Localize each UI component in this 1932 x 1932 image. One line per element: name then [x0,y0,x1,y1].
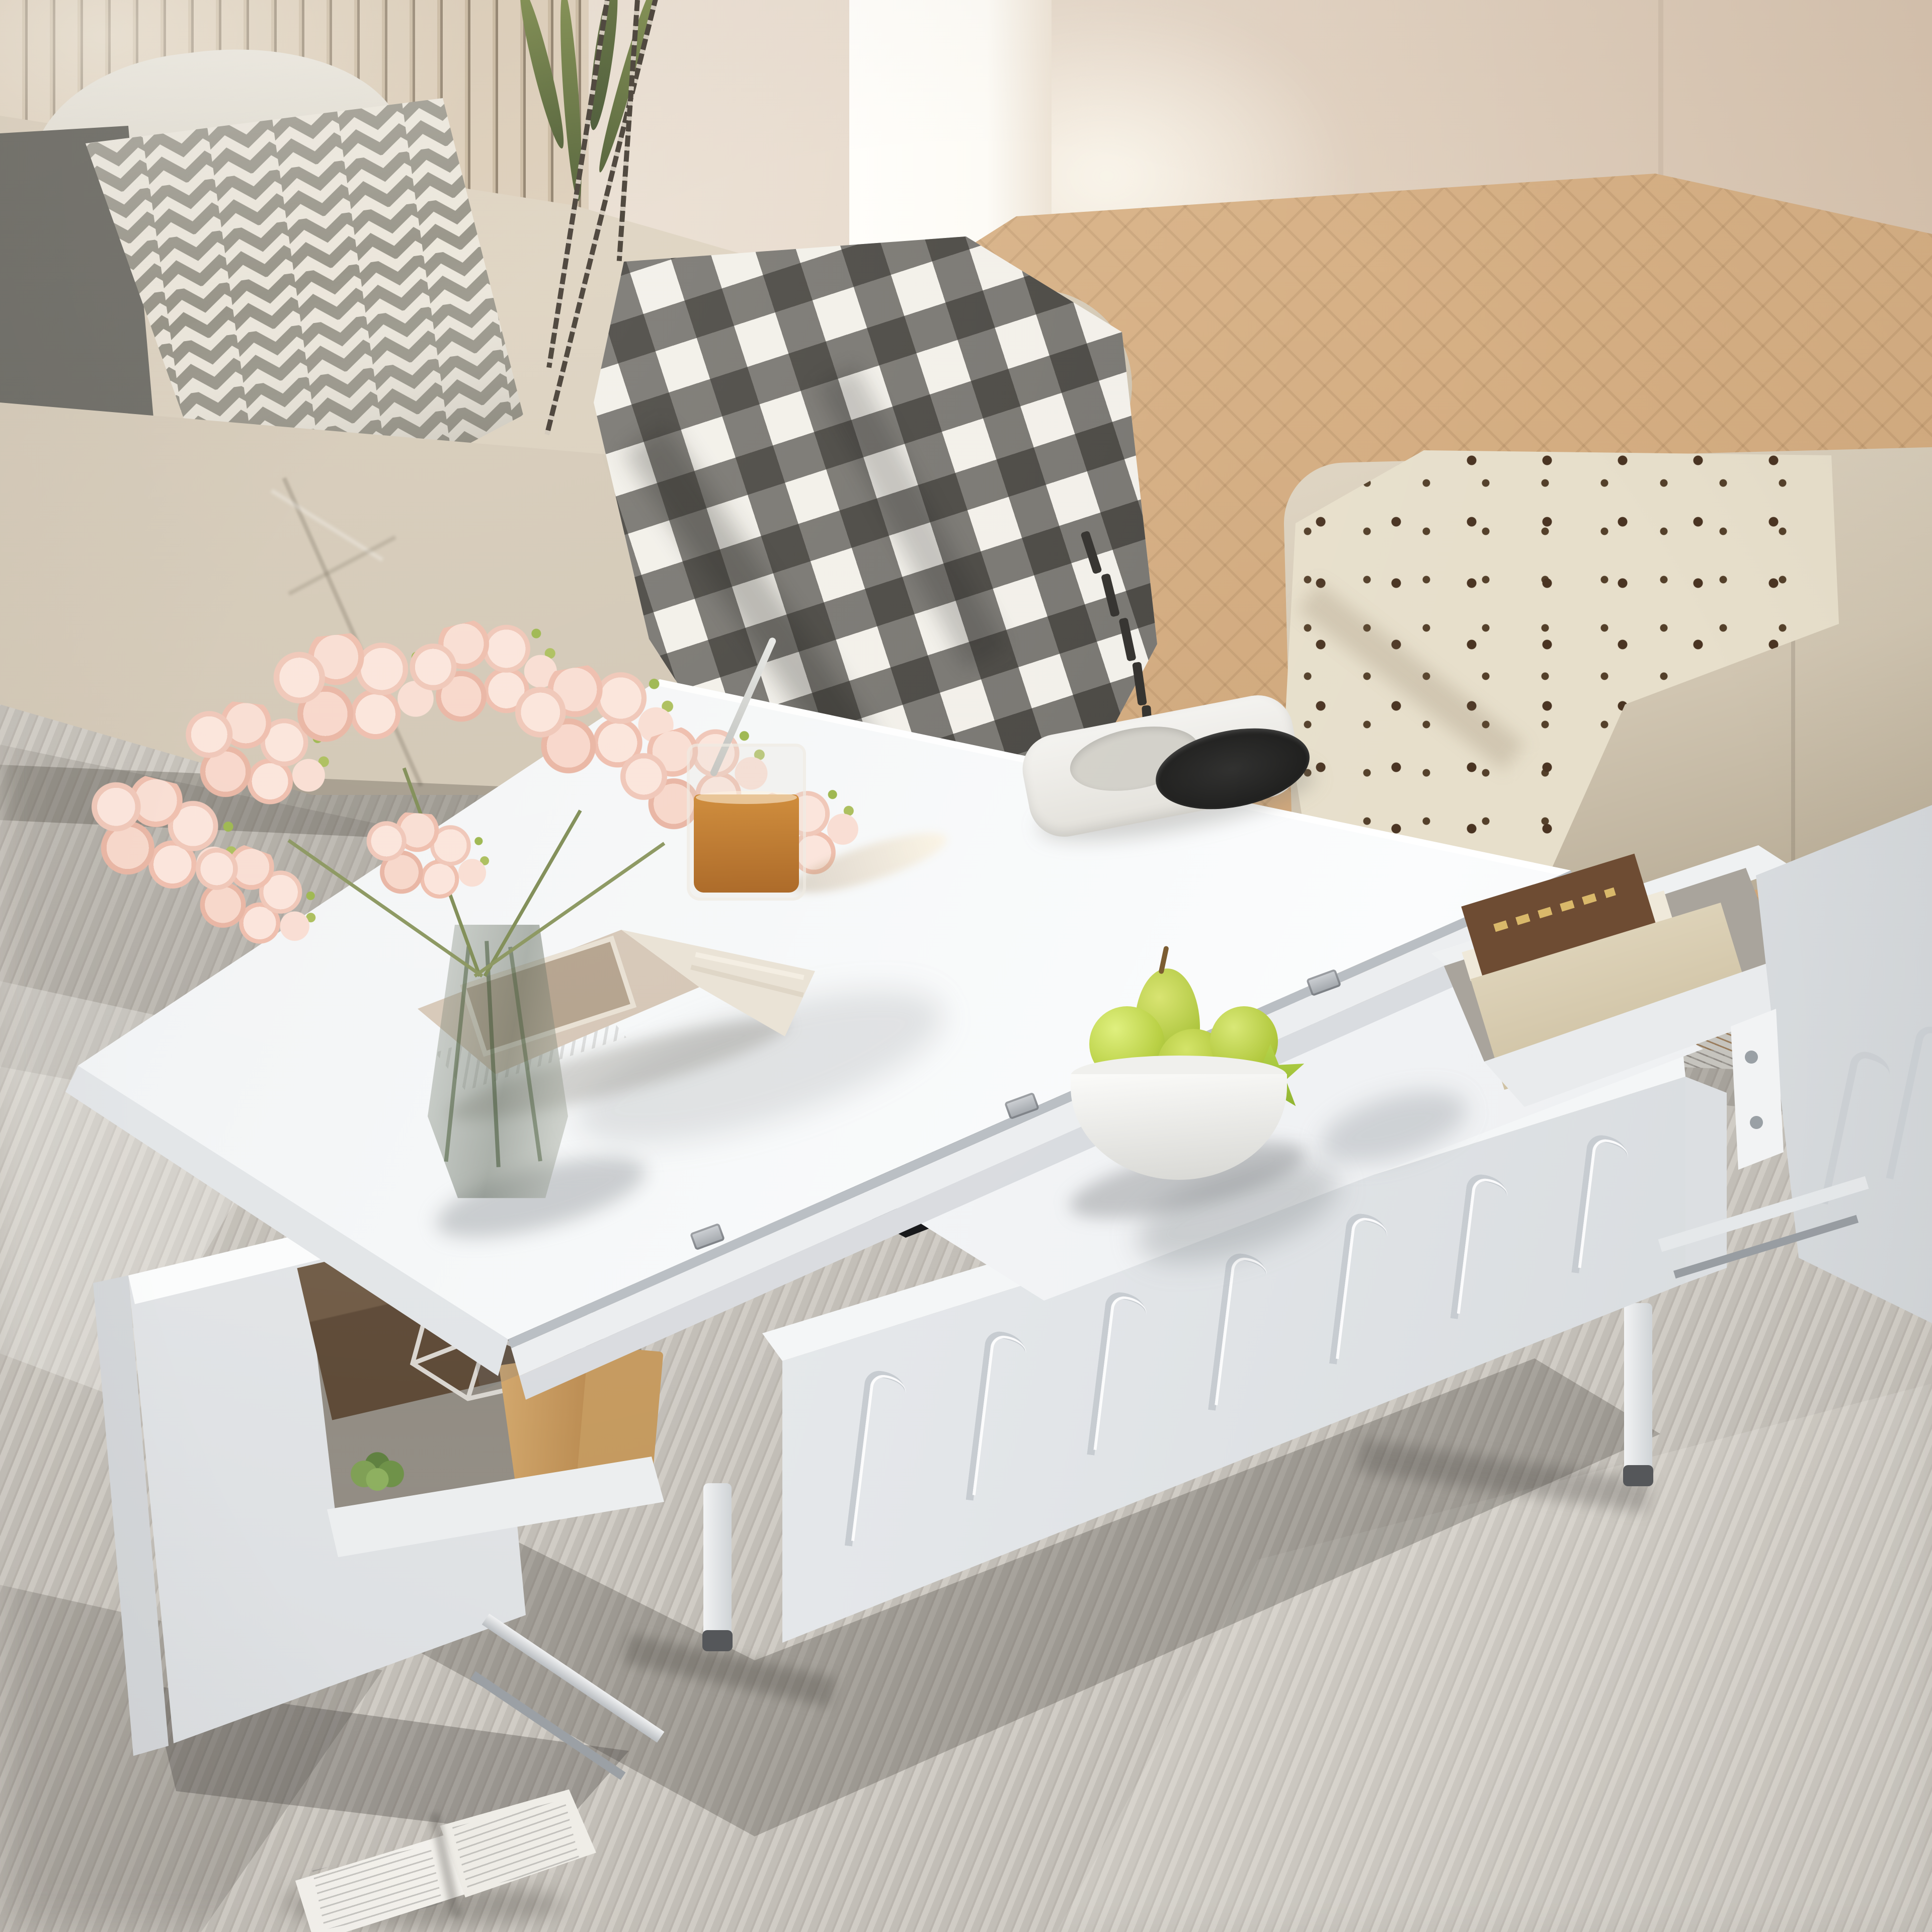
vignette [0,0,1932,1932]
living-room-scene: .spray{position:absolute;width:300px;hei… [0,0,1932,1932]
